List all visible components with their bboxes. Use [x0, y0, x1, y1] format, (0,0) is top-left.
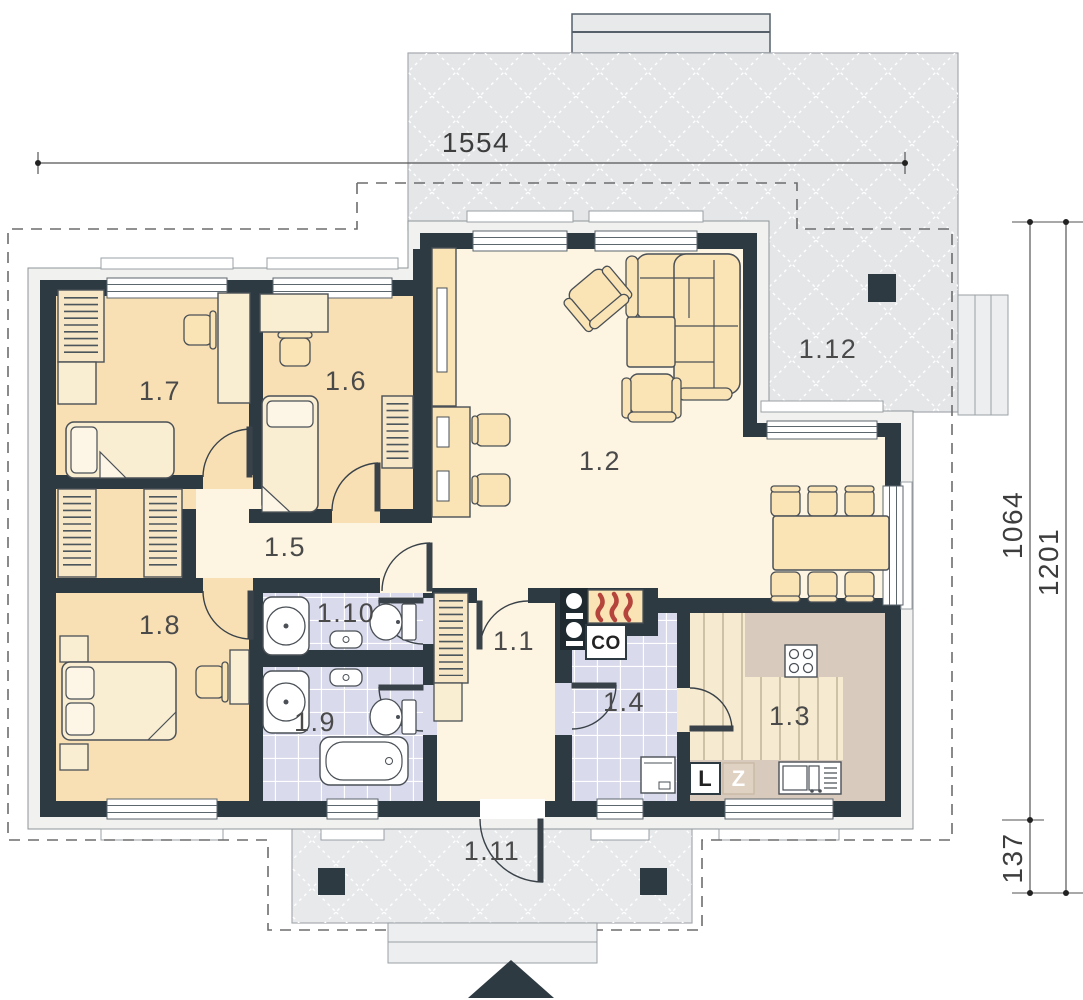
- desk-1-7: [218, 293, 250, 403]
- porch-step-2: [388, 942, 597, 963]
- floor-plan-drawing: CO L Z 1.7: [0, 0, 1083, 1000]
- room-1-5-label: 1.5: [264, 532, 306, 562]
- dim-house-depth-value: 1064: [997, 491, 1028, 559]
- cabinet-1-7: [58, 362, 96, 404]
- flue-round-2: [566, 622, 582, 638]
- window-sill: [101, 829, 223, 840]
- hob: [785, 645, 817, 677]
- dining-chairs-top: [771, 486, 874, 516]
- terrace-column: [868, 274, 896, 302]
- room-1-8-label: 1.8: [139, 610, 181, 640]
- window-sill: [101, 258, 233, 269]
- dimension-right-total-depth: 1201: [1033, 219, 1083, 896]
- terrace-steps: [958, 295, 1008, 415]
- porch-post-right: [640, 868, 667, 895]
- bed-1-7: [66, 422, 174, 478]
- boiler-marker: CO: [586, 625, 626, 659]
- fridge-marker: L: [690, 763, 720, 794]
- window-sill: [267, 258, 398, 269]
- dim-porch-offset-value: 137: [997, 832, 1028, 883]
- room-1-11-label: 1.11: [464, 836, 521, 866]
- room-1-1-label: 1.1: [493, 626, 535, 656]
- dining-table: [773, 516, 889, 570]
- window-1-4: [597, 799, 643, 819]
- room-1-10-label: 1.10: [317, 598, 376, 628]
- chair-1-8: [196, 662, 228, 702]
- entrance-arrow-icon: [468, 960, 554, 998]
- study-chair-2: [472, 474, 510, 506]
- room-1-6-label: 1.6: [325, 366, 367, 396]
- washbasin-1-10: [263, 597, 309, 655]
- nightstand-1-8-top: [60, 636, 88, 662]
- wardrobe-nook-left: [58, 489, 96, 577]
- boiler-label: CO: [591, 633, 621, 654]
- window-1-8: [107, 799, 217, 819]
- dining-chairs-bottom: [771, 572, 874, 602]
- room-1-12-label: 1.12: [799, 334, 858, 364]
- window-1-9: [327, 799, 378, 819]
- bed-1-8: [62, 662, 176, 740]
- window-kitchen: [725, 799, 833, 819]
- porch-step-1: [388, 923, 597, 942]
- freezer-marker: Z: [723, 763, 754, 794]
- fridge-label: L: [698, 766, 711, 791]
- window-sill: [467, 211, 573, 222]
- freezer-label: Z: [732, 766, 745, 791]
- room-1-3-label: 1.3: [769, 701, 811, 731]
- toilet-1-9: [370, 699, 416, 735]
- chimney: [572, 14, 770, 53]
- coffee-table: [627, 317, 675, 367]
- room-1-7-label: 1.7: [139, 376, 181, 406]
- bed-1-6: [262, 396, 318, 512]
- dining-set: [771, 486, 889, 602]
- room-1-4-label: 1.4: [603, 687, 645, 717]
- desk-1-6: [260, 294, 328, 332]
- chair-1-7: [184, 311, 216, 349]
- toilet-1-10: [370, 604, 416, 640]
- dim-top-width-value: 1554: [442, 127, 510, 158]
- washing-machine: [641, 757, 675, 793]
- nightstand-1-8-bottom: [60, 744, 88, 770]
- window-sill: [321, 829, 384, 840]
- flue-round-1: [566, 593, 582, 609]
- armchair-1: [622, 374, 681, 422]
- flue-vent-1: [566, 613, 583, 619]
- window-sill: [591, 829, 649, 840]
- flue-vent-2: [566, 641, 583, 646]
- room-1-2-label: 1.2: [579, 446, 621, 476]
- porch-post-left: [318, 868, 345, 895]
- wardrobe-nook-right: [144, 489, 182, 577]
- window-sill: [589, 211, 703, 222]
- window-sill: [761, 401, 883, 412]
- window-living-1: [473, 231, 567, 251]
- wardrobe-1-6: [382, 396, 413, 468]
- study-chair-1: [472, 414, 510, 446]
- kitchen-sink: [779, 762, 841, 794]
- floor-plan-page: CO L Z 1.7: [0, 0, 1083, 1000]
- window-1-7: [107, 278, 227, 298]
- desk-1-8: [230, 650, 249, 704]
- cabinet-hall: [434, 683, 462, 721]
- chair-1-6: [278, 332, 312, 366]
- wardrobe-hall: [434, 593, 468, 683]
- bathtub: [320, 737, 408, 785]
- dim-total-depth-value: 1201: [1033, 528, 1064, 596]
- window-terrace: [767, 421, 877, 439]
- room-1-9-label: 1.9: [294, 707, 336, 737]
- wardrobe-1-7: [58, 290, 104, 362]
- window-sill: [719, 829, 839, 840]
- window-living-2: [595, 231, 697, 251]
